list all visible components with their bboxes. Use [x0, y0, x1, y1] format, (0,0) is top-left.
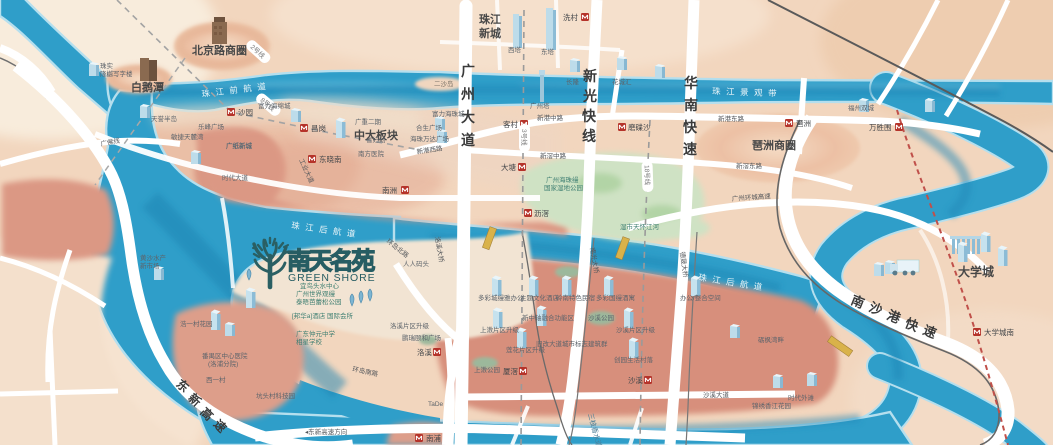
svg-text:办公/整合空间: 办公/整合空间 [680, 293, 721, 302]
svg-text:珠实: 珠实 [100, 61, 114, 70]
svg-text:线: 线 [582, 128, 596, 144]
svg-text:南浦: 南浦 [426, 433, 441, 443]
svg-text:新滘东路: 新滘东路 [736, 161, 763, 170]
svg-text:[邦华a]酒店 国际会所: [邦华a]酒店 国际会所 [292, 311, 354, 320]
svg-text:客村: 客村 [503, 119, 518, 129]
svg-text:长隆: 长隆 [566, 77, 580, 86]
svg-text:道: 道 [461, 132, 475, 148]
svg-text:岭南特色民宿: 岭南特色民宿 [556, 293, 596, 302]
svg-text:华: 华 [684, 75, 698, 91]
svg-text:西一村: 西一村 [206, 375, 226, 384]
svg-text:广纸新城: 广纸新城 [226, 141, 253, 150]
svg-text:广: 广 [461, 63, 475, 79]
svg-text:沙园: 沙园 [238, 108, 253, 117]
svg-text:创园生活村落: 创园生活村落 [614, 355, 654, 364]
svg-text:洗村: 洗村 [563, 12, 578, 22]
svg-text:人人码头: 人人码头 [403, 259, 430, 268]
svg-text:南洲: 南洲 [382, 185, 397, 195]
svg-text:州: 州 [460, 86, 475, 102]
svg-text:广东仲元中学: 广东仲元中学 [296, 329, 336, 338]
svg-text:花城汇: 花城汇 [612, 77, 632, 86]
svg-text:南: 南 [684, 97, 698, 113]
svg-text:国家湿地公园: 国家湿地公园 [544, 183, 583, 192]
svg-text:合生广场: 合生广场 [416, 123, 443, 132]
svg-text:TaDe: TaDe [428, 401, 444, 408]
svg-text:新中轴融合功能区: 新中轴融合功能区 [522, 313, 575, 322]
svg-text:(洛浦分院): (洛浦分院) [208, 359, 238, 368]
svg-text:珠江: 珠江 [479, 12, 501, 26]
svg-text:富力海珠城: 富力海珠城 [432, 109, 465, 118]
svg-text:泰晤芭蕾松公园: 泰晤芭蕾松公园 [296, 297, 342, 306]
svg-text:昌岗: 昌岗 [311, 124, 326, 133]
svg-text:广重二期: 广重二期 [355, 117, 382, 126]
svg-text:多彩城缦雅办公: 多彩城缦雅办公 [478, 293, 524, 302]
svg-text:北京路商圈: 北京路商圈 [192, 43, 247, 57]
svg-text:福州双城: 福州双城 [848, 103, 875, 112]
svg-text:3号线: 3号线 [520, 129, 529, 146]
svg-text:沙溪大道: 沙溪大道 [703, 390, 730, 399]
svg-text:万胜围: 万胜围 [869, 122, 892, 132]
svg-text:琶洲: 琶洲 [796, 119, 811, 128]
svg-text:光: 光 [582, 88, 597, 104]
svg-text:东塔: 东塔 [541, 47, 555, 56]
svg-text:海珠万达广场: 海珠万达广场 [410, 134, 450, 143]
svg-text:琶洲商圈: 琶洲商圈 [752, 138, 796, 152]
svg-text:新城: 新城 [479, 26, 501, 40]
svg-text:沙溪: 沙溪 [628, 375, 643, 385]
svg-text:敏捷天麓湾: 敏捷天麓湾 [171, 132, 204, 141]
svg-text:番禺区中心医院: 番禺区中心医院 [202, 351, 248, 360]
svg-text:锦绣香江花园: 锦绣香江花园 [752, 401, 791, 410]
svg-text:黄沙水产: 黄沙水产 [140, 253, 167, 262]
svg-text:南天名苑: 南天名苑 [287, 247, 375, 275]
svg-text:主题文化酒店: 主题文化酒店 [520, 293, 560, 302]
svg-text:◂东新高速方向: ◂东新高速方向 [305, 427, 347, 436]
svg-text:省妇幼: 省妇幼 [366, 135, 386, 144]
svg-text:隆樾写字楼: 隆樾写字楼 [100, 69, 133, 78]
svg-text:快: 快 [683, 119, 698, 135]
svg-text:沥滘: 沥滘 [534, 209, 549, 218]
svg-text:南方医院: 南方医院 [358, 149, 385, 158]
svg-text:宜鸟头水中心: 宜鸟头水中心 [300, 281, 340, 290]
svg-text:新港东路: 新港东路 [718, 114, 745, 123]
svg-text:新滘中路: 新滘中路 [540, 151, 567, 160]
svg-text:富力海绵城: 富力海绵城 [258, 101, 291, 110]
svg-text:浩一村花园: 浩一村花园 [180, 319, 213, 328]
svg-text:上漖公园: 上漖公园 [474, 365, 500, 374]
svg-text:二沙岛: 二沙岛 [434, 79, 454, 88]
svg-text:快: 快 [582, 108, 597, 124]
svg-text:乐峰广场: 乐峰广场 [198, 122, 225, 131]
svg-text:广州世界观缦: 广州世界观缦 [296, 289, 336, 298]
svg-text:广州塔: 广州塔 [530, 101, 550, 110]
svg-text:坑头村科技园: 坑头村科技园 [256, 391, 295, 400]
svg-text:大学城: 大学城 [958, 264, 994, 279]
svg-text:新市场: 新市场 [140, 261, 160, 270]
svg-text:旧改大道城市标志建筑群: 旧改大道城市标志建筑群 [536, 339, 608, 348]
svg-text:多彩国缦酒寓: 多彩国缦酒寓 [596, 293, 635, 302]
svg-text:上漖片区升级: 上漖片区升级 [480, 325, 520, 334]
svg-text:大塘: 大塘 [501, 162, 516, 172]
svg-text:沙溪片区升级: 沙溪片区升级 [616, 325, 656, 334]
svg-text:砺枫湾畔: 砺枫湾畔 [758, 335, 785, 344]
svg-text:速: 速 [683, 141, 697, 157]
svg-text:相星学校: 相星学校 [296, 337, 323, 346]
svg-text:天誉半岛: 天誉半岛 [151, 114, 177, 123]
svg-text:磨碟沙: 磨碟沙 [628, 122, 651, 132]
svg-text:东晓南: 东晓南 [319, 154, 342, 164]
svg-text:大学城南: 大学城南 [984, 327, 1014, 337]
svg-text:湿市天怀江河: 湿市天怀江河 [620, 222, 660, 231]
svg-text:鹏瑞颐和广场: 鹏瑞颐和广场 [402, 333, 442, 342]
svg-text:洛溪: 洛溪 [417, 347, 432, 357]
svg-text:时代大道: 时代大道 [222, 173, 249, 182]
svg-text:洛溪片区升级: 洛溪片区升级 [390, 321, 430, 330]
svg-text:西塔: 西塔 [508, 45, 522, 54]
svg-text:沙溪公园: 沙溪公园 [588, 313, 614, 322]
svg-text:时代外滩: 时代外滩 [788, 393, 815, 402]
svg-text:厦滘: 厦滘 [503, 367, 518, 376]
svg-text:白鹅潭: 白鹅潭 [131, 80, 164, 94]
svg-text:新港中路: 新港中路 [537, 113, 564, 122]
svg-text:广州海珠缦: 广州海珠缦 [546, 175, 579, 184]
svg-text:新: 新 [583, 68, 597, 84]
